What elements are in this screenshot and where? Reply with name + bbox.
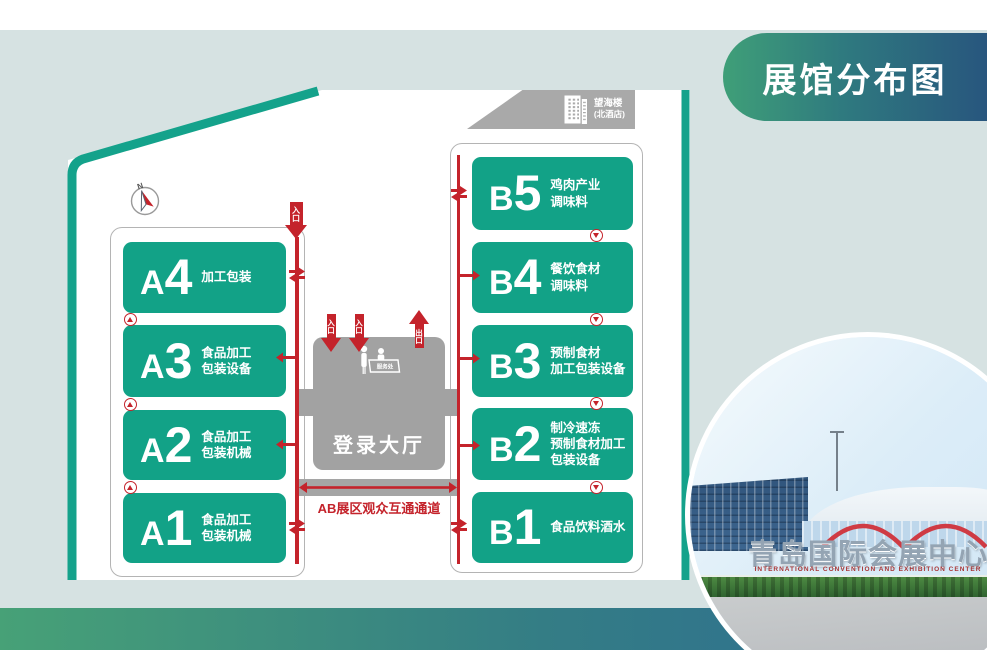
entrance-label: 入口 [290,202,303,225]
exchange-arrow-icon [287,266,307,283]
hall-code: B [489,519,514,548]
up-chevron-icon [124,481,137,494]
hall-code: A [140,520,165,549]
right-arrow-icon [459,270,480,281]
hall-code: A [140,437,165,466]
exhibition-map-page: 望海楼 (北酒店) N A4 加工包装 A3 食品加工 包装设备 A2 食品加工… [0,0,987,650]
down-chevron-icon [590,481,603,494]
hall-name: 餐饮食材 调味料 [550,261,600,294]
compass-icon: N [125,179,165,219]
hall-name: 制冷速冻 预制食材加工 包装设备 [550,420,625,469]
arrow-head [321,338,341,352]
entrance-arrow: 入口 [321,314,341,352]
right-arrow-icon [459,440,480,451]
exit-label: 出口 [415,324,424,348]
hall-block-a4: A4 加工包装 [123,242,286,313]
hall-code: B [489,269,514,298]
corridor-label: AB展区观众互通通道 [293,498,465,517]
building-icon [564,95,588,124]
hotel-subname: (北酒店) [594,110,625,120]
hall-block-a3: A3 食品加工 包装设备 [123,325,286,397]
right-arrow-icon [459,353,480,364]
entrance-label: 入口 [327,314,336,338]
photo-hedge [690,575,987,597]
hall-code: B [489,185,514,214]
hall-block-b3: B3 预制食材 加工包装设备 [472,325,633,397]
compass-north-label: N [136,181,144,191]
title-badge: 展馆分布图 [723,33,987,121]
entrance-arrow: 入口 [349,314,369,352]
exchange-arrow-icon [449,518,469,535]
exit-arrow: 出口 [409,310,429,348]
hall-name: 食品饮料酒水 [550,519,625,535]
service-desk-label: 服务处 [377,363,394,371]
photo-road [690,597,987,650]
arrow-head [285,225,307,239]
hall-name: 食品加工 包装机械 [201,512,251,545]
left-arrow-icon [276,352,297,363]
hall-code: A [140,353,165,382]
hall-block-a1: A1 食品加工 包装机械 [123,493,286,563]
hall-block-b5: B5 鸡肉产业 调味料 [472,157,633,230]
hall-block-a2: A2 食品加工 包装机械 [123,410,286,480]
entrance-label: 入口 [355,314,364,338]
up-chevron-icon [124,313,137,326]
hall-code: A [140,269,165,298]
lobby-label: 登录大厅 [313,429,445,458]
hall-code: B [489,353,514,382]
hall-name: 食品加工 包装机械 [201,429,251,462]
hall-name: 加工包装 [201,269,251,285]
arrow-head [349,338,369,352]
hall-name: 预制食材 加工包装设备 [550,345,625,378]
hall-name: 鸡肉产业 调味料 [550,177,600,210]
photo-light-pole [836,431,838,491]
exchange-arrow-icon [449,185,469,202]
hall-block-b4: B4 餐饮食材 调味料 [472,242,633,313]
left-arrow-icon [276,439,297,450]
venue-photo: 青岛国际会展中心 INTERNATIONAL CONVENTION AND EX… [685,332,987,650]
hall-block-b1: B1 食品饮料酒水 [472,492,633,563]
double-headed-arrow [299,481,457,494]
page-title: 展馆分布图 [763,53,948,102]
down-chevron-icon [590,229,603,242]
arrow-head [409,310,429,324]
entrance-arrow: 入口 [285,202,307,239]
down-chevron-icon [590,313,603,326]
hall-code: B [489,436,514,465]
exchange-arrow-icon [287,518,307,535]
down-chevron-icon [590,397,603,410]
hall-name: 食品加工 包装设备 [201,345,251,378]
up-chevron-icon [124,398,137,411]
hall-block-b2: B2 制冷速冻 预制食材加工 包装设备 [472,408,633,480]
venue-name-en: INTERNATIONAL CONVENTION AND EXHIBITION … [690,566,987,573]
